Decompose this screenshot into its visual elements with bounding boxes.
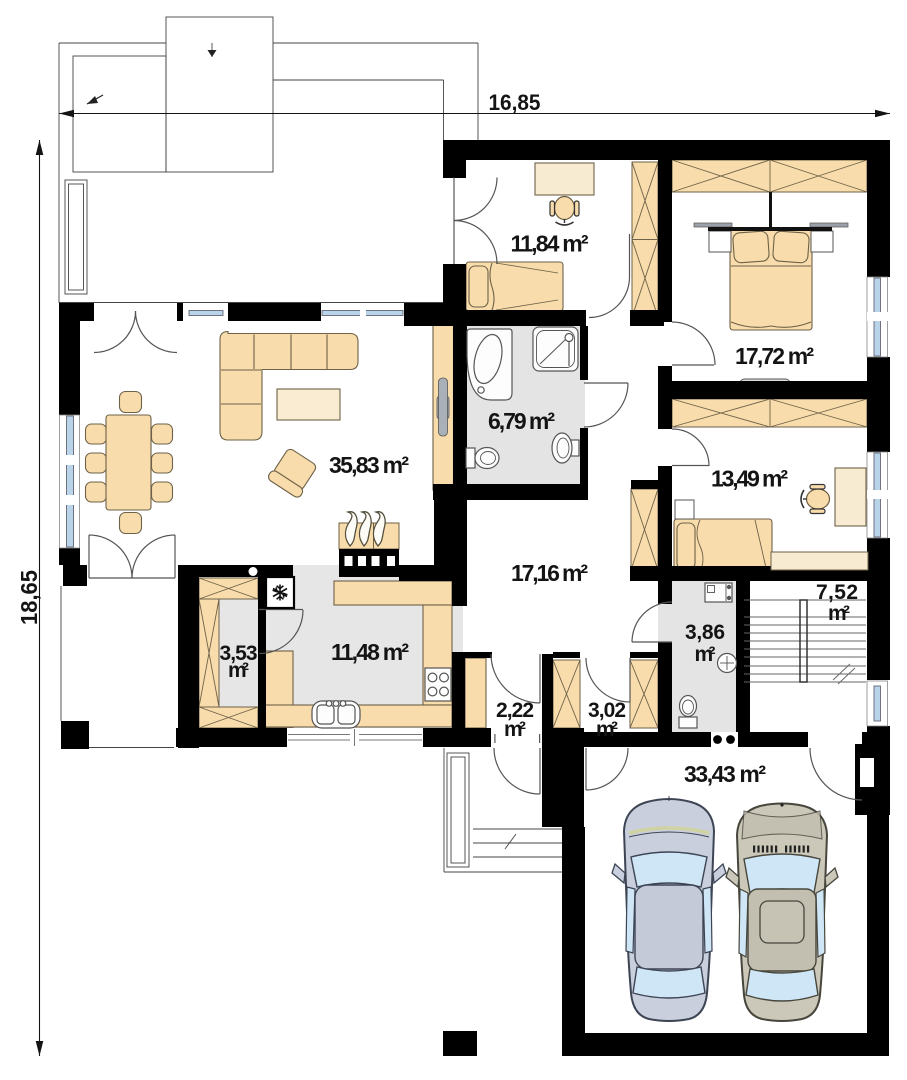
svg-text:m²: m² [828, 602, 850, 625]
svg-text:6,79 m²: 6,79 m² [488, 408, 555, 434]
svg-text:17,72 m²: 17,72 m² [735, 343, 814, 369]
svg-text:16,85: 16,85 [489, 90, 541, 115]
svg-text:33,43 m²: 33,43 m² [684, 761, 766, 787]
svg-text:m²: m² [695, 643, 716, 666]
svg-text:11,48 m²: 11,48 m² [331, 639, 409, 665]
svg-text:13,49 m²: 13,49 m² [711, 466, 788, 492]
svg-text:m²: m² [596, 718, 618, 741]
svg-text:11,84 m²: 11,84 m² [511, 231, 589, 257]
svg-text:18,65: 18,65 [16, 570, 42, 625]
svg-text:7,52: 7,52 [816, 581, 858, 604]
svg-text:35,83 m²: 35,83 m² [329, 452, 409, 478]
svg-text:17,16 m²: 17,16 m² [511, 560, 588, 586]
svg-text:m²: m² [504, 718, 526, 741]
svg-text:m²: m² [228, 659, 249, 682]
svg-text:3,86: 3,86 [685, 621, 725, 644]
